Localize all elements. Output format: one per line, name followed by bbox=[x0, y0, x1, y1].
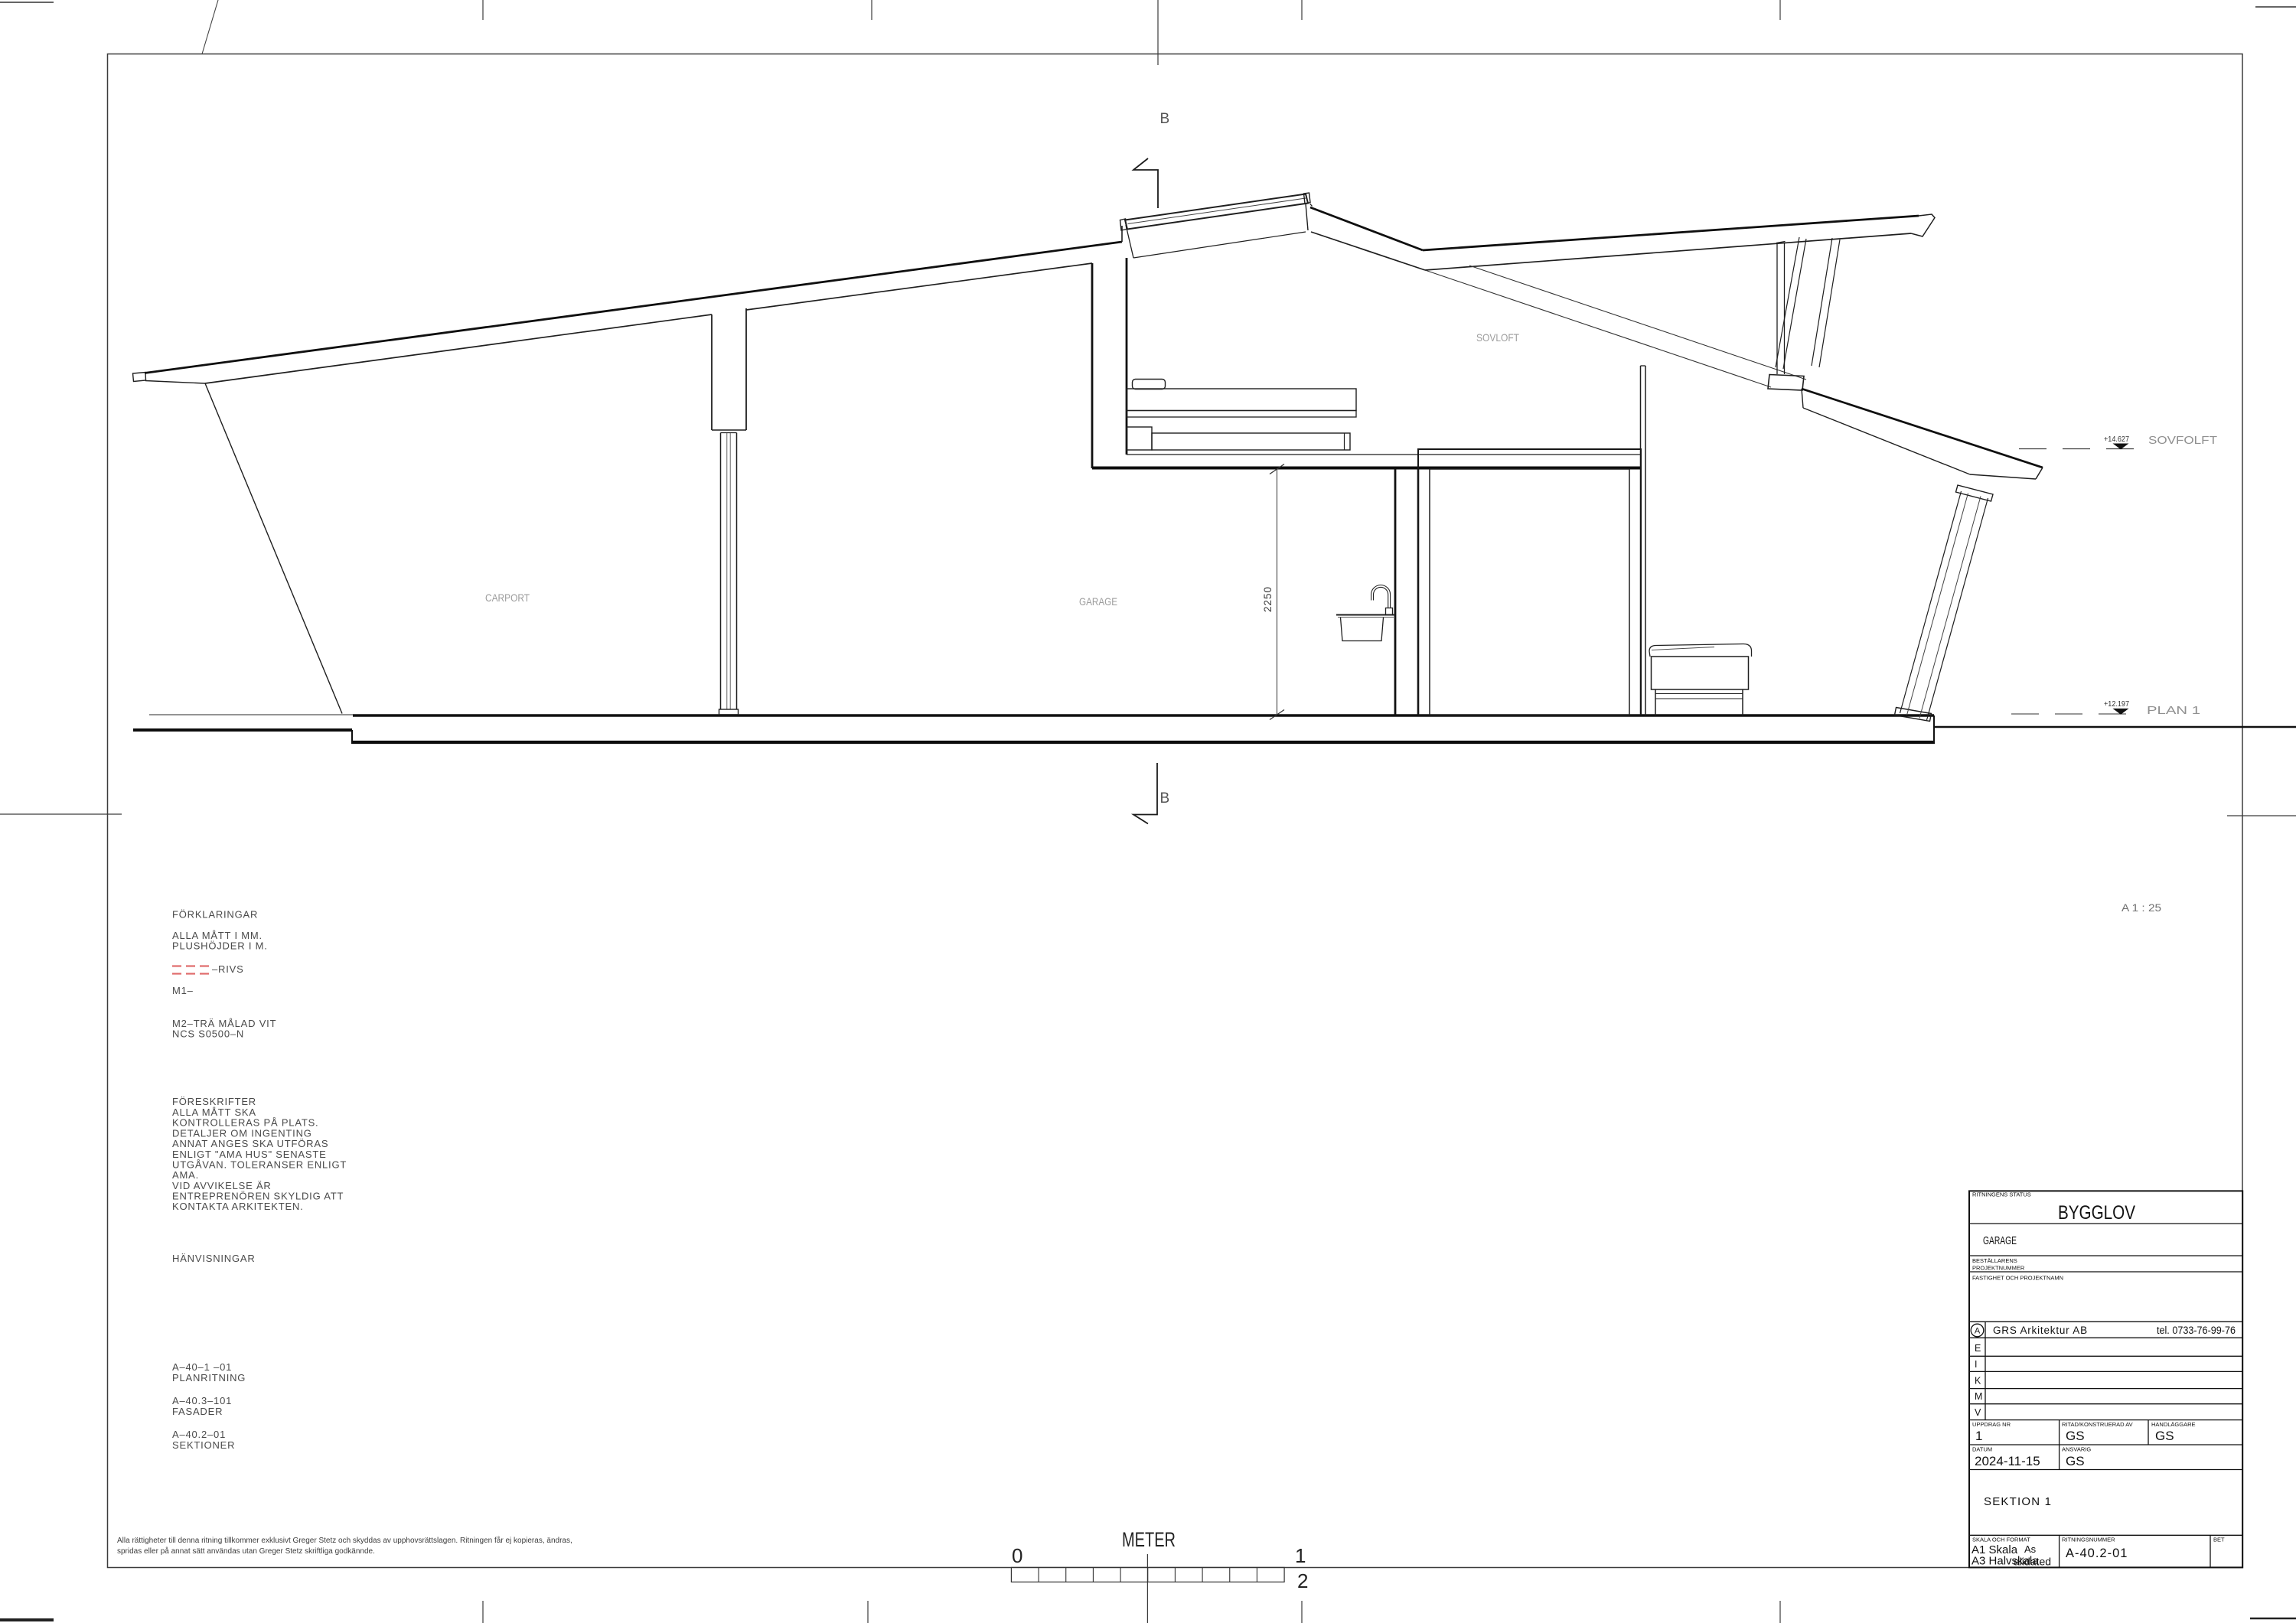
svg-text:1: 1 bbox=[1975, 1429, 1982, 1443]
svg-text:PLANRITNING: PLANRITNING bbox=[172, 1372, 246, 1383]
svg-text:PLUSHÖJDER I M.: PLUSHÖJDER I M. bbox=[172, 940, 268, 952]
svg-text:ANSVARIG: ANSVARIG bbox=[2062, 1446, 2091, 1453]
svg-text:UPPDRAG NR: UPPDRAG NR bbox=[1972, 1421, 2011, 1428]
svg-text:+14.627: +14.627 bbox=[2104, 435, 2129, 444]
svg-text:Alla rättigheter till denna ri: Alla rättigheter till denna ritning till… bbox=[117, 1536, 572, 1545]
svg-text:AMA.: AMA. bbox=[172, 1169, 199, 1181]
svg-text:–RIVS: –RIVS bbox=[212, 963, 244, 975]
svg-text:A–40.3–101: A–40.3–101 bbox=[172, 1395, 232, 1406]
svg-text:A 1 : 25: A 1 : 25 bbox=[2122, 902, 2161, 914]
svg-text:+12.197: +12.197 bbox=[2104, 700, 2129, 709]
svg-text:FÖRKLARINGAR: FÖRKLARINGAR bbox=[172, 909, 258, 921]
svg-text:BET: BET bbox=[2213, 1537, 2225, 1543]
svg-text:M1–: M1– bbox=[172, 985, 194, 996]
svg-text:FÖRESKRIFTER: FÖRESKRIFTER bbox=[172, 1096, 256, 1107]
svg-text:SKALA OCH FORMAT: SKALA OCH FORMAT bbox=[1972, 1537, 2030, 1543]
svg-text:BESTÄLLARENS: BESTÄLLARENS bbox=[1972, 1257, 2017, 1264]
svg-text:FASTIGHET OCH PROJEKTNAMN: FASTIGHET OCH PROJEKTNAMN bbox=[1972, 1275, 2063, 1282]
svg-text:B: B bbox=[1160, 111, 1170, 127]
svg-text:tel. 0733-76-99-76: tel. 0733-76-99-76 bbox=[2157, 1325, 2236, 1336]
svg-text:NCS S0500–N: NCS S0500–N bbox=[172, 1028, 244, 1040]
svg-text:GS: GS bbox=[2155, 1429, 2174, 1443]
svg-text:E: E bbox=[1975, 1343, 1981, 1354]
svg-text:I: I bbox=[1975, 1359, 1977, 1370]
svg-text:CARPORT: CARPORT bbox=[485, 592, 530, 604]
svg-text:METER: METER bbox=[1122, 1528, 1176, 1551]
svg-text:0: 0 bbox=[1012, 1544, 1022, 1567]
svg-text:HÄNVISNINGAR: HÄNVISNINGAR bbox=[172, 1253, 256, 1264]
svg-text:FASADER: FASADER bbox=[172, 1406, 223, 1417]
svg-text:As: As bbox=[2024, 1543, 2037, 1555]
svg-text:RITNINGENS STATUS: RITNINGENS STATUS bbox=[1972, 1191, 2031, 1198]
svg-text:HANDLÄGGARE: HANDLÄGGARE bbox=[2151, 1421, 2196, 1428]
svg-text:ANNAT ANGES SKA UTFÖRAS: ANNAT ANGES SKA UTFÖRAS bbox=[172, 1138, 328, 1149]
svg-text:KONTAKTA ARKITEKTEN.: KONTAKTA ARKITEKTEN. bbox=[172, 1201, 304, 1212]
svg-text:GS: GS bbox=[2066, 1429, 2085, 1443]
svg-text:2024-11-15: 2024-11-15 bbox=[1975, 1454, 2040, 1468]
svg-text:KONTROLLERAS PÅ PLATS.: KONTROLLERAS PÅ PLATS. bbox=[172, 1117, 318, 1129]
svg-text:RITAD/KONSTRUERAD AV: RITAD/KONSTRUERAD AV bbox=[2062, 1421, 2133, 1428]
svg-text:B: B bbox=[1160, 790, 1170, 807]
svg-text:A–40.2–01: A–40.2–01 bbox=[172, 1429, 226, 1440]
svg-text:alidated: alidated bbox=[2014, 1556, 2051, 1568]
svg-text:2: 2 bbox=[1297, 1569, 1308, 1592]
svg-text:2250: 2250 bbox=[1262, 586, 1274, 612]
svg-text:GARAGE: GARAGE bbox=[1983, 1235, 2017, 1247]
svg-text:SOVLOFT: SOVLOFT bbox=[1476, 331, 1519, 344]
svg-text:SEKTION 1: SEKTION 1 bbox=[1984, 1495, 2052, 1508]
svg-text:1: 1 bbox=[1295, 1544, 1306, 1567]
svg-text:M: M bbox=[1975, 1391, 1982, 1402]
svg-text:SEKTIONER: SEKTIONER bbox=[172, 1439, 235, 1451]
svg-text:GRS Arkitektur AB: GRS Arkitektur AB bbox=[1993, 1325, 2088, 1336]
svg-text:GARAGE: GARAGE bbox=[1079, 595, 1117, 608]
svg-text:DATUM: DATUM bbox=[1972, 1446, 1992, 1453]
svg-text:PLAN 1: PLAN 1 bbox=[2147, 705, 2200, 717]
svg-text:K: K bbox=[1975, 1376, 1981, 1387]
svg-text:A–40–1 –01: A–40–1 –01 bbox=[172, 1361, 232, 1373]
svg-text:V: V bbox=[1975, 1407, 1981, 1418]
svg-text:GS: GS bbox=[2066, 1454, 2085, 1468]
svg-text:BYGGLOV: BYGGLOV bbox=[2058, 1202, 2135, 1224]
svg-text:RITNINGSNUMMER: RITNINGSNUMMER bbox=[2062, 1537, 2115, 1543]
svg-text:A-40.2-01: A-40.2-01 bbox=[2066, 1546, 2128, 1560]
svg-text:A: A bbox=[1975, 1327, 1981, 1336]
svg-text:PROJEKTNUMMER: PROJEKTNUMMER bbox=[1972, 1265, 2025, 1272]
svg-text:SOVFOLFT: SOVFOLFT bbox=[2148, 435, 2217, 447]
svg-text:spridas eller på annat sätt an: spridas eller på annat sätt användas uta… bbox=[117, 1546, 375, 1556]
